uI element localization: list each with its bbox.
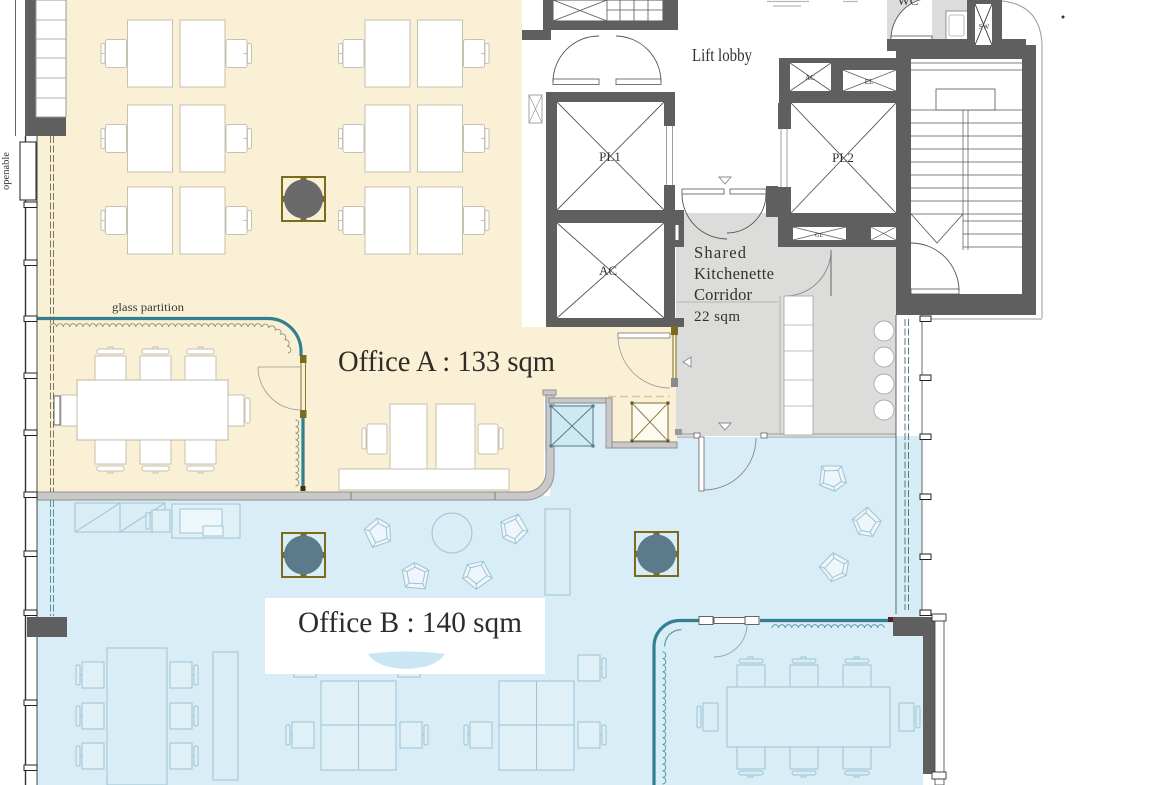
- svg-text:Office B : 140 sqm: Office B : 140 sqm: [298, 606, 522, 639]
- svg-text:EL: EL: [865, 78, 874, 86]
- svg-text:AC: AC: [599, 263, 617, 278]
- svg-text:glass partition: glass partition: [112, 300, 184, 314]
- svg-text:PL1: PL1: [599, 149, 621, 164]
- svg-text:Shared: Shared: [694, 243, 747, 262]
- svg-text:GL: GL: [815, 233, 823, 239]
- svg-text:Kitchenette: Kitchenette: [694, 264, 774, 283]
- svg-text:AC: AC: [805, 74, 815, 82]
- svg-text:Office A : 133 sqm: Office A : 133 sqm: [338, 345, 555, 378]
- svg-text:PL2: PL2: [832, 150, 854, 165]
- svg-text:22 sqm: 22 sqm: [694, 309, 740, 325]
- svg-text:SW: SW: [979, 23, 990, 31]
- svg-text:openable: openable: [1, 152, 12, 190]
- svg-text:Corridor: Corridor: [694, 285, 753, 304]
- svg-text:Lift lobby: Lift lobby: [692, 45, 752, 65]
- svg-text:WC: WC: [898, 0, 919, 8]
